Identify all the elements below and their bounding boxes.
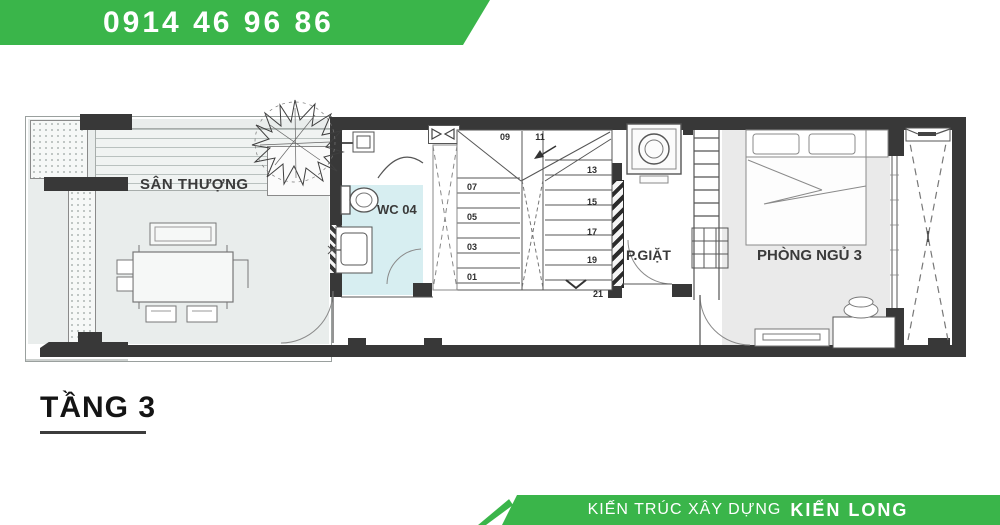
stair-number: 19 <box>582 255 602 265</box>
wall-column-2 <box>424 338 442 346</box>
bottom-brand-banner: KIẾN TRÚC XÂY DỰNG KIẾN LONG <box>496 495 1000 525</box>
wall-right <box>952 117 966 357</box>
stair-number: 11 <box>530 132 550 142</box>
wall-sliding-door-bottom <box>886 308 904 345</box>
tree-planter-box <box>267 146 333 196</box>
wall-laundry-door-jamb <box>672 284 692 297</box>
stair-number: 09 <box>495 132 515 142</box>
stairs <box>457 130 612 290</box>
wall-column-1 <box>348 338 366 346</box>
wall-bottom <box>128 345 966 357</box>
wall-wc-hatch <box>330 225 342 273</box>
right-void-x <box>906 128 950 340</box>
stair-number: 01 <box>462 272 482 282</box>
bedroom-label: PHÒNG NGỦ 3 <box>757 247 862 264</box>
wall-stair-right-top <box>608 163 622 180</box>
sliding-door-track <box>890 156 899 308</box>
door-arcs <box>281 291 750 345</box>
wall-top <box>330 117 966 130</box>
wall-block-terrace-left <box>44 177 128 191</box>
brand-prefix: KIẾN TRÚC XÂY DỰNG <box>588 501 782 519</box>
wall-canopy-bottom-left <box>40 342 128 357</box>
wall-block-terrace-bottom <box>78 332 102 344</box>
wc-label: WC 04 <box>377 202 417 217</box>
wc-void-x <box>433 145 457 290</box>
stair-number: 03 <box>462 242 482 252</box>
wall-stair-right-bottom <box>608 286 622 298</box>
wall-stair-right-hatched <box>610 180 624 288</box>
wall-laundry-right <box>683 117 693 135</box>
bedroom-floor <box>722 130 890 345</box>
stair-number: 07 <box>462 182 482 192</box>
wall-wc-door-jamb <box>413 283 432 297</box>
stair-number: 17 <box>582 227 602 237</box>
stair-number: 05 <box>462 212 482 222</box>
brand-name: KIẾN LONG <box>790 500 908 521</box>
vent-box <box>428 125 460 144</box>
floor-title-underline <box>40 431 146 434</box>
wall-block-top-left <box>80 114 132 130</box>
stair-number: 13 <box>582 165 602 175</box>
terrace-label: SÂN THƯỢNG <box>140 176 249 193</box>
floor-title: TẦNG 3 <box>40 391 156 425</box>
stair-number: 21 <box>588 289 608 299</box>
wall-sliding-door-top <box>886 128 904 156</box>
page: 0914 46 96 86 <box>0 0 1000 525</box>
planter-left-strip <box>68 190 96 343</box>
wall-column-3 <box>928 338 950 346</box>
laundry-label: P.GIẶT <box>626 247 671 263</box>
stair-number: 15 <box>582 197 602 207</box>
floor-plan: SÂN THƯỢNG WC 04 P.GIẶT PHÒNG NGỦ 3 07 0… <box>0 0 1000 525</box>
